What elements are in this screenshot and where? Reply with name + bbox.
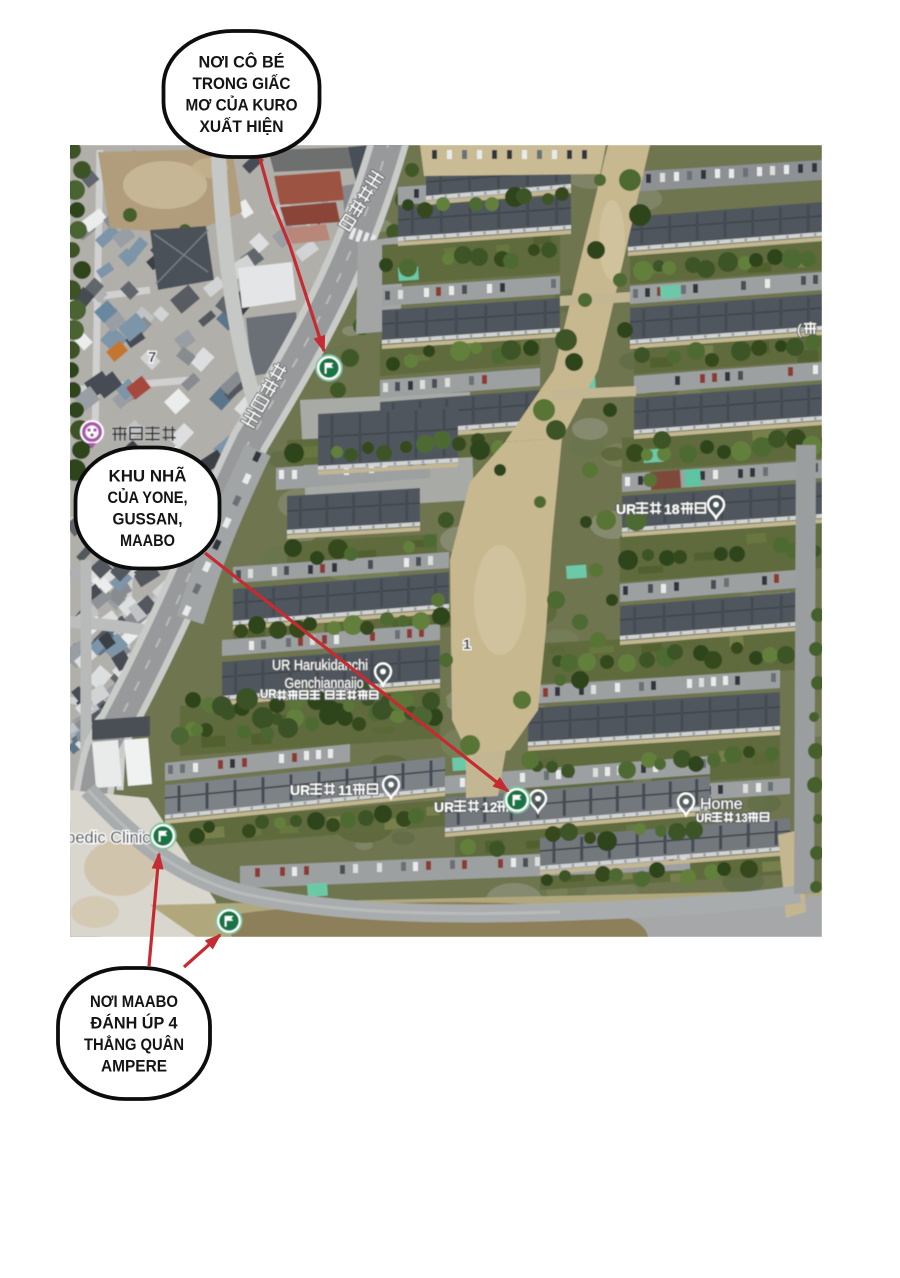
svg-text:11: 11 bbox=[338, 782, 353, 798]
svg-text:13: 13 bbox=[735, 813, 748, 825]
svg-text:MAABO: MAABO bbox=[120, 531, 175, 550]
svg-text:AMPERE: AMPERE bbox=[101, 1058, 167, 1076]
svg-text:(: ( bbox=[797, 321, 802, 337]
svg-text:GUSSAN,: GUSSAN, bbox=[113, 510, 183, 529]
svg-text:UR: UR bbox=[434, 799, 454, 815]
svg-text:KHU NHÃ: KHU NHÃ bbox=[109, 466, 187, 486]
svg-text:UR: UR bbox=[696, 813, 713, 825]
svg-text:12: 12 bbox=[482, 799, 498, 815]
svg-text:18: 18 bbox=[664, 501, 680, 517]
svg-text:NƠI MAABO: NƠI MAABO bbox=[90, 993, 178, 1011]
svg-text:Home: Home bbox=[700, 796, 743, 813]
svg-text:THẲNG QUÂN: THẲNG QUÂN bbox=[84, 1035, 184, 1054]
svg-text:UR: UR bbox=[290, 782, 310, 798]
svg-text:7: 7 bbox=[148, 349, 156, 366]
svg-text:1: 1 bbox=[463, 636, 471, 652]
svg-text:Genchiannaijo: Genchiannaijo bbox=[285, 675, 364, 692]
svg-text:NƠI CÔ BÉ: NƠI CÔ BÉ bbox=[199, 53, 285, 72]
svg-text:opedic Clinic: opedic Clinic bbox=[57, 829, 151, 847]
svg-text:TRONG GIẤC: TRONG GIẤC bbox=[193, 74, 291, 93]
svg-text:CỦA YONE,: CỦA YONE, bbox=[108, 488, 188, 507]
svg-text:XUẤT HIỆN: XUẤT HIỆN bbox=[200, 117, 284, 136]
svg-text:MƠ CỦA KURO: MƠ CỦA KURO bbox=[186, 96, 298, 115]
svg-text:ĐÁNH ÚP 4: ĐÁNH ÚP 4 bbox=[91, 1014, 179, 1033]
svg-text:UR: UR bbox=[616, 501, 636, 517]
svg-text:UR: UR bbox=[260, 689, 277, 701]
